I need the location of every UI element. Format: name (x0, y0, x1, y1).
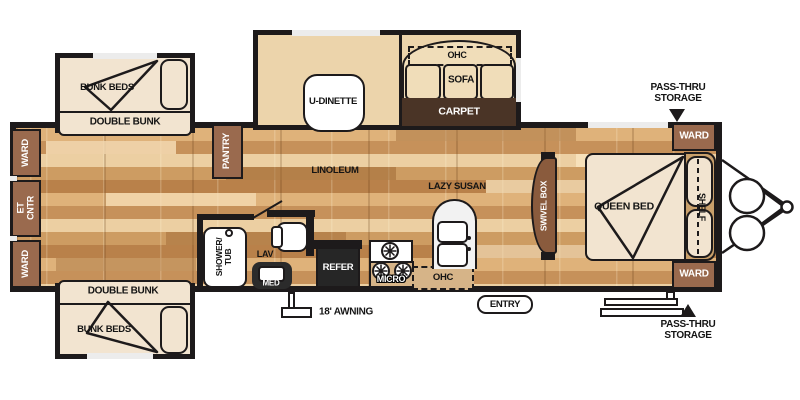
hitch-coupler-icon (782, 202, 793, 213)
carpet-label: CARPET (438, 106, 479, 117)
toilet-tank (271, 226, 283, 248)
queen-bed-label: QUEEN BED (594, 201, 654, 212)
sofa-cushion (480, 64, 514, 100)
entry-step (604, 298, 678, 306)
shower-tub-label: SHOWER/ TUB (215, 238, 233, 277)
ward-right-bottom-label: WARD (679, 270, 708, 281)
refer-label: REFER (323, 263, 354, 273)
pass-thru-top-label: PASS-THRU STORAGE (651, 83, 706, 105)
swivel-box-label: SWIVEL BOX (539, 181, 548, 231)
window (588, 122, 668, 128)
lazy-susan-label: LAZY SUSAN (428, 182, 486, 192)
window (10, 176, 17, 181)
kitchen-sink-basin (437, 221, 468, 243)
entry-label: ENTRY (490, 300, 520, 310)
ward-left-bottom-label: WARD (21, 250, 31, 278)
micro-label: MICRO (377, 275, 406, 285)
shelf-label: SHELF (696, 193, 706, 221)
sofa-ohc-label: OHC (447, 51, 466, 61)
med-label: MED (263, 280, 280, 289)
floor-plank (106, 193, 256, 206)
sofa-cushion (405, 64, 441, 100)
awning-bracket (281, 307, 312, 318)
window (93, 53, 157, 59)
sofa-label: SOFA (448, 76, 474, 87)
window (87, 353, 153, 359)
propane-tank-icon (730, 179, 764, 213)
awning-label: 18' AWNING (319, 308, 373, 319)
window (292, 30, 380, 36)
window (516, 58, 521, 102)
et-cntr-label: ET CNTR (16, 196, 35, 220)
pantry-label: PANTRY (222, 133, 232, 169)
pillow (160, 59, 188, 110)
double-bunk-top-label: DOUBLE BUNK (90, 118, 161, 129)
lav-label: LAV (257, 250, 273, 260)
ward-right-top-label: WARD (679, 132, 708, 143)
window (10, 236, 17, 241)
linoleum-label: LINOLEUM (311, 166, 358, 176)
pillow (160, 306, 188, 354)
ward-left-top-label: WARD (21, 139, 31, 167)
hitch-frame-icon (722, 160, 793, 253)
bunk-beds-top-label: BUNK BEDS (80, 83, 134, 93)
propane-tank-icon (730, 216, 764, 250)
double-bunk-bottom-label: DOUBLE BUNK (88, 287, 159, 298)
kitchen-sink-basin (437, 243, 468, 267)
pass-thru-arrow-down-icon (669, 109, 685, 122)
entry-step (600, 308, 684, 317)
floor-plank (56, 258, 196, 271)
pass-thru-bottom-label: PASS-THRU STORAGE (661, 320, 716, 342)
kitchen-ohc-label: OHC (433, 273, 453, 283)
floorplan-diagram: BUNK BEDS DOUBLE BUNK U-DINETTE OHC SOFA… (0, 0, 800, 400)
bunk-beds-bottom-label: BUNK BEDS (77, 325, 131, 335)
bath-wall (197, 214, 254, 220)
floor-plank (46, 141, 176, 154)
u-dinette-label: U-DINETTE (309, 97, 357, 107)
